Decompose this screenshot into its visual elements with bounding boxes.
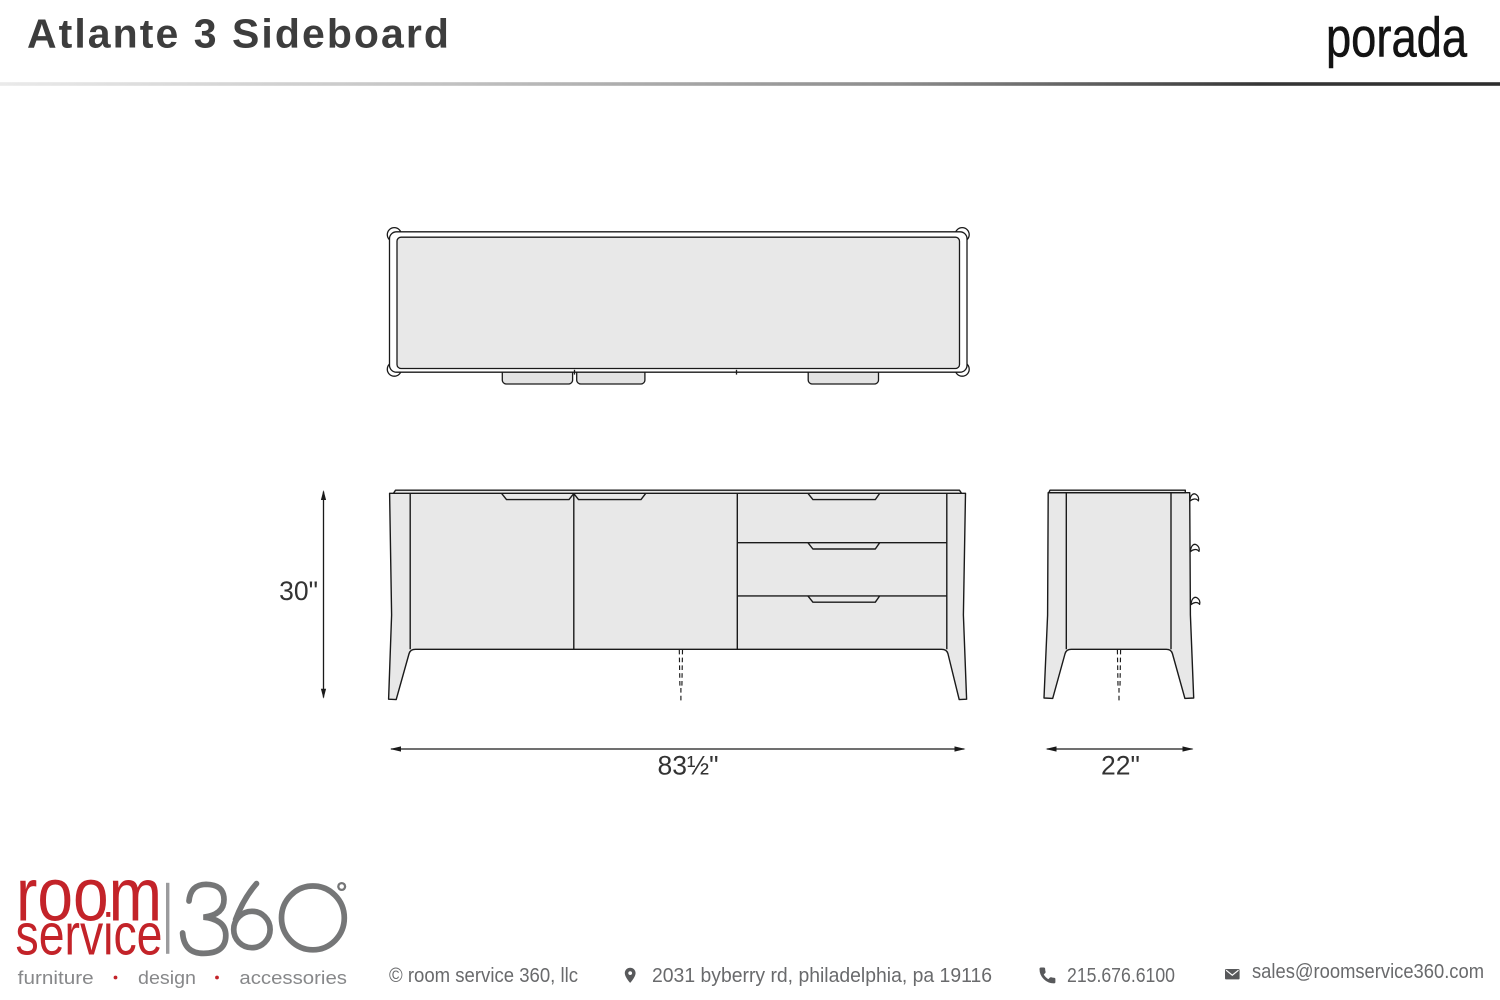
svg-text:30": 30" (279, 576, 318, 606)
svg-text:2031 byberry rd, philadelphia,: 2031 byberry rd, philadelphia, pa 19116 (652, 964, 992, 987)
svg-text:design: design (138, 968, 196, 988)
svg-text:sales@roomservice360.com: sales@roomservice360.com (1252, 960, 1484, 983)
svg-text:83½": 83½" (658, 751, 719, 781)
svg-text:accessories: accessories (239, 968, 347, 988)
svg-text:furniture: furniture (18, 968, 94, 988)
svg-text:22": 22" (1101, 751, 1140, 781)
svg-text:© room service 360, llc: © room service 360, llc (389, 964, 578, 987)
svg-text:215.676.6100: 215.676.6100 (1067, 964, 1175, 987)
svg-text:porada: porada (1326, 6, 1468, 69)
svg-text:Atlante 3 Sideboard: Atlante 3 Sideboard (27, 11, 451, 57)
svg-text:service: service (16, 903, 163, 968)
